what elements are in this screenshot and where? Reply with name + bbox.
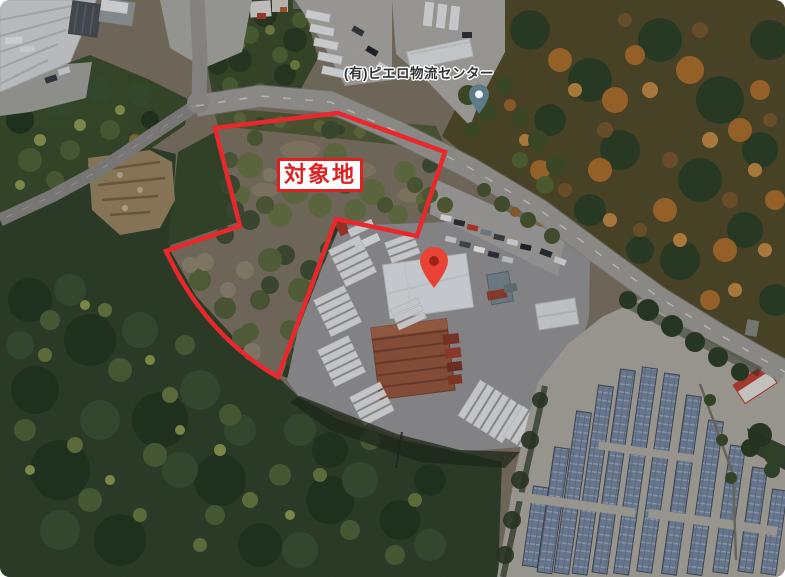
target-site-label-text: 対象地 bbox=[284, 164, 356, 186]
photo-grain bbox=[0, 0, 785, 577]
target-site-label: 対象地 bbox=[277, 158, 363, 192]
poi-label[interactable]: (有)ピエロ物流センター bbox=[344, 62, 494, 82]
red-map-pin-icon[interactable] bbox=[420, 247, 448, 288]
teal-poi-pin-icon[interactable] bbox=[469, 84, 489, 114]
satellite-map[interactable]: 対象地 (有)ピエロ物流センター bbox=[0, 0, 785, 577]
satellite-imagery bbox=[0, 0, 785, 577]
